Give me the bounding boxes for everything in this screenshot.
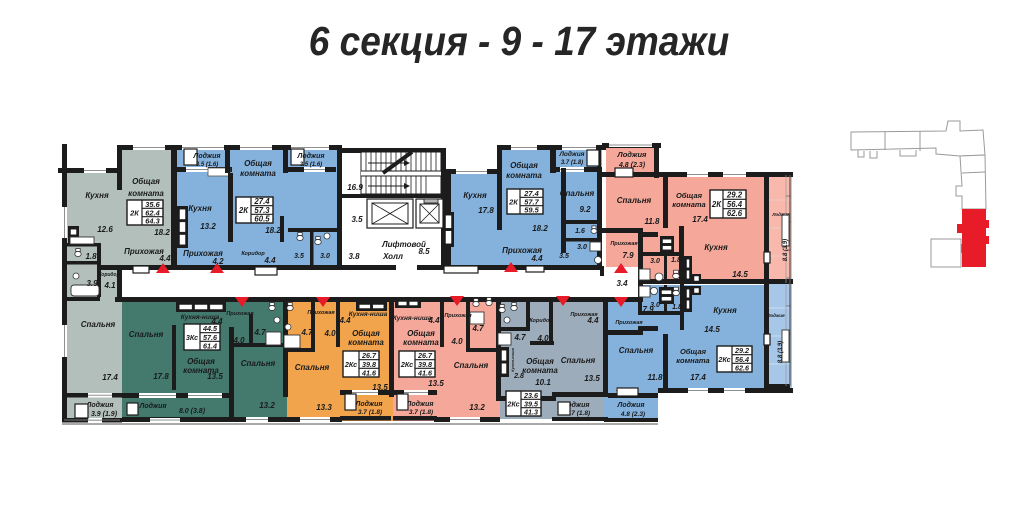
svg-text:комната: комната xyxy=(676,356,709,365)
svg-text:Прихожая: Прихожая xyxy=(615,320,643,326)
svg-text:44.5: 44.5 xyxy=(202,324,218,333)
svg-text:10.1: 10.1 xyxy=(535,378,551,387)
svg-text:Лоджия: Лоджия xyxy=(406,400,434,408)
svg-text:3.9 (1.9): 3.9 (1.9) xyxy=(91,411,118,418)
svg-text:17.4: 17.4 xyxy=(102,373,118,382)
svg-text:3.5 (1.6): 3.5 (1.6) xyxy=(196,162,218,168)
svg-text:13.3: 13.3 xyxy=(316,403,332,412)
svg-text:17.4: 17.4 xyxy=(690,373,706,382)
svg-text:3.5 (1.6): 3.5 (1.6) xyxy=(300,162,322,168)
svg-text:57.3: 57.3 xyxy=(254,206,270,215)
svg-text:4.7: 4.7 xyxy=(471,324,484,333)
svg-text:Прихожая: Прихожая xyxy=(307,310,335,316)
svg-text:Общая: Общая xyxy=(187,357,215,366)
svg-text:3.5: 3.5 xyxy=(559,253,569,260)
svg-text:Лоджия: Лоджия xyxy=(193,152,221,160)
svg-text:26.7: 26.7 xyxy=(417,351,433,360)
svg-text:Общая: Общая xyxy=(132,177,160,186)
svg-text:13.2: 13.2 xyxy=(200,222,216,231)
svg-text:Общая: Общая xyxy=(676,191,703,200)
svg-text:4.7: 4.7 xyxy=(253,328,266,337)
svg-text:3.9: 3.9 xyxy=(86,279,98,288)
svg-text:8.0 (3.8): 8.0 (3.8) xyxy=(179,408,206,415)
svg-text:2Кс: 2Кс xyxy=(717,355,730,364)
svg-text:Коридор: Коридор xyxy=(241,251,265,257)
svg-text:4.0: 4.0 xyxy=(536,334,549,343)
svg-text:17.4: 17.4 xyxy=(692,215,708,224)
svg-text:17.8: 17.8 xyxy=(478,206,494,215)
svg-text:13.5: 13.5 xyxy=(207,372,223,381)
svg-text:3.7 (1.8): 3.7 (1.8) xyxy=(409,409,433,416)
svg-text:2К: 2К xyxy=(129,208,139,217)
svg-text:17.8: 17.8 xyxy=(153,372,169,381)
svg-text:2Кс: 2Кс xyxy=(506,399,519,408)
svg-text:Спальня: Спальня xyxy=(454,361,489,370)
svg-text:18.2: 18.2 xyxy=(154,228,170,237)
svg-text:8.5: 8.5 xyxy=(418,247,430,256)
svg-text:9.2: 9.2 xyxy=(579,205,591,214)
svg-text:2К: 2К xyxy=(238,206,249,215)
svg-text:Кухня-ниша: Кухня-ниша xyxy=(349,311,388,318)
svg-text:Спальня: Спальня xyxy=(619,346,654,355)
svg-text:4.4: 4.4 xyxy=(530,254,543,263)
svg-text:3.7 (1.8): 3.7 (1.8) xyxy=(561,160,583,166)
svg-text:Кухня: Кухня xyxy=(188,204,212,213)
svg-text:18.2: 18.2 xyxy=(532,224,548,233)
svg-text:3.0: 3.0 xyxy=(320,253,330,260)
svg-text:4.4: 4.4 xyxy=(586,316,599,325)
svg-text:62.6: 62.6 xyxy=(727,209,743,218)
svg-text:Спальня: Спальня xyxy=(241,359,276,368)
svg-text:Прихожая: Прихожая xyxy=(124,247,164,256)
svg-text:2.8: 2.8 xyxy=(513,373,524,380)
svg-text:4.0: 4.0 xyxy=(323,329,336,338)
svg-text:комната: комната xyxy=(403,338,439,347)
svg-text:4.4: 4.4 xyxy=(263,256,276,265)
svg-text:8.8 (3.9): 8.8 (3.9) xyxy=(783,239,789,261)
svg-text:Прихожая: Прихожая xyxy=(226,311,254,317)
svg-text:3.8: 3.8 xyxy=(348,252,360,261)
svg-text:11.8: 11.8 xyxy=(648,373,664,382)
svg-text:64.3: 64.3 xyxy=(145,217,160,226)
svg-text:61.4: 61.4 xyxy=(203,341,217,350)
svg-text:Кухня-ниша: Кухня-ниша xyxy=(510,347,515,371)
svg-text:2Кс: 2Кс xyxy=(344,360,357,369)
svg-text:комната: комната xyxy=(348,338,384,347)
svg-text:2К: 2К xyxy=(508,197,518,206)
svg-text:Спальня: Спальня xyxy=(129,330,164,339)
svg-text:4.8 (2.3): 4.8 (2.3) xyxy=(620,411,645,418)
svg-text:4.7: 4.7 xyxy=(513,333,526,342)
svg-text:3.5: 3.5 xyxy=(351,215,363,224)
svg-text:Коридор: Коридор xyxy=(98,272,119,278)
svg-text:Прихожая: Прихожая xyxy=(444,313,472,319)
svg-text:Спальня: Спальня xyxy=(81,320,116,329)
svg-text:Прихожая: Прихожая xyxy=(610,241,638,247)
svg-text:29.2: 29.2 xyxy=(734,346,749,355)
svg-text:Лоджия: Лоджия xyxy=(771,212,790,217)
svg-text:Лоджия: Лоджия xyxy=(617,150,647,159)
svg-text:1.8: 1.8 xyxy=(672,304,682,311)
svg-text:Общая: Общая xyxy=(352,329,380,338)
svg-text:39.8: 39.8 xyxy=(362,360,376,369)
svg-text:Лоджия: Лоджия xyxy=(766,313,785,318)
svg-text:Кухня: Кухня xyxy=(85,191,109,200)
svg-text:4.8 (2.3): 4.8 (2.3) xyxy=(618,162,646,169)
svg-text:13.5: 13.5 xyxy=(428,379,444,388)
svg-text:3.0: 3.0 xyxy=(650,302,660,309)
svg-text:13.2: 13.2 xyxy=(259,401,275,410)
svg-text:Кухня: Кухня xyxy=(704,243,728,252)
svg-text:4.4: 4.4 xyxy=(427,316,440,325)
svg-text:Общая: Общая xyxy=(526,357,554,366)
svg-text:3Кс: 3Кс xyxy=(186,333,198,342)
svg-text:Лоджия: Лоджия xyxy=(355,400,383,408)
svg-text:2Кс: 2Кс xyxy=(400,360,413,369)
svg-text:4.2: 4.2 xyxy=(211,257,224,266)
svg-text:41.3: 41.3 xyxy=(523,408,538,417)
svg-text:Лоджия: Лоджия xyxy=(617,401,645,409)
svg-text:Спальня: Спальня xyxy=(295,363,330,372)
svg-text:13.2: 13.2 xyxy=(469,403,485,412)
svg-text:41.6: 41.6 xyxy=(361,368,377,377)
svg-text:Спальня: Спальня xyxy=(561,356,596,365)
svg-text:Общая: Общая xyxy=(407,329,435,338)
svg-text:3.0: 3.0 xyxy=(650,258,660,265)
svg-text:4.0: 4.0 xyxy=(232,336,245,345)
svg-text:14.5: 14.5 xyxy=(732,270,748,279)
svg-text:4.0: 4.0 xyxy=(450,337,463,346)
svg-text:Лоджия: Лоджия xyxy=(297,152,325,160)
svg-text:16.9: 16.9 xyxy=(347,183,363,192)
svg-text:29.2: 29.2 xyxy=(726,190,743,199)
svg-text:1.8: 1.8 xyxy=(85,252,97,261)
svg-text:4.4: 4.4 xyxy=(158,254,171,263)
svg-text:3.4: 3.4 xyxy=(616,279,628,288)
svg-text:комната: комната xyxy=(240,169,276,178)
svg-text:Кухня: Кухня xyxy=(713,306,737,315)
svg-text:Спальня: Спальня xyxy=(617,196,652,205)
svg-text:59.5: 59.5 xyxy=(524,206,539,215)
svg-text:Холл: Холл xyxy=(382,252,403,261)
svg-text:14.5: 14.5 xyxy=(704,325,720,334)
svg-text:3.5: 3.5 xyxy=(294,253,304,260)
svg-text:60.5: 60.5 xyxy=(254,214,270,223)
svg-text:3.7 (1.8): 3.7 (1.8) xyxy=(358,409,382,416)
svg-text:4.7: 4.7 xyxy=(300,328,313,337)
svg-text:39.8: 39.8 xyxy=(418,360,432,369)
svg-text:6 секция - 9 - 17 этажи: 6 секция - 9 - 17 этажи xyxy=(309,20,729,65)
svg-text:56.4: 56.4 xyxy=(735,355,749,364)
svg-text:Общая: Общая xyxy=(510,161,538,170)
svg-text:Кухня: Кухня xyxy=(463,191,487,200)
svg-text:Общая: Общая xyxy=(680,347,707,356)
svg-text:Спальня: Спальня xyxy=(560,189,595,198)
svg-text:3.0: 3.0 xyxy=(577,244,587,251)
svg-text:27.4: 27.4 xyxy=(253,197,270,206)
svg-text:1.8: 1.8 xyxy=(671,257,681,264)
svg-text:13.5: 13.5 xyxy=(584,374,600,383)
svg-text:Общая: Общая xyxy=(244,159,272,168)
svg-text:2К: 2К xyxy=(711,200,722,209)
svg-text:комната: комната xyxy=(522,366,558,375)
svg-text:комната: комната xyxy=(672,200,705,209)
svg-text:26.7: 26.7 xyxy=(361,351,377,360)
svg-text:Лоджия: Лоджия xyxy=(558,150,584,158)
svg-text:12.6: 12.6 xyxy=(97,225,113,234)
svg-text:11.8: 11.8 xyxy=(645,217,661,226)
svg-text:Лоджия: Лоджия xyxy=(139,402,167,410)
svg-text:1.6: 1.6 xyxy=(575,228,585,235)
svg-text:57.6: 57.6 xyxy=(203,333,218,342)
svg-text:56.4: 56.4 xyxy=(727,200,743,209)
svg-text:Кухня-ниша: Кухня-ниша xyxy=(393,315,432,322)
svg-text:7.9: 7.9 xyxy=(622,251,634,260)
svg-text:41.6: 41.6 xyxy=(417,368,433,377)
svg-text:комната: комната xyxy=(128,189,164,198)
svg-text:4.1: 4.1 xyxy=(103,281,116,290)
svg-text:8.8 (3.9): 8.8 (3.9) xyxy=(778,341,784,363)
svg-text:Лоджия: Лоджия xyxy=(86,401,114,409)
svg-text:18.2: 18.2 xyxy=(265,226,281,235)
svg-text:13.5: 13.5 xyxy=(372,383,388,392)
svg-text:4.4: 4.4 xyxy=(338,316,351,325)
svg-text:комната: комната xyxy=(506,171,542,180)
svg-text:Коридор: Коридор xyxy=(529,318,553,324)
svg-text:62.6: 62.6 xyxy=(735,363,750,372)
